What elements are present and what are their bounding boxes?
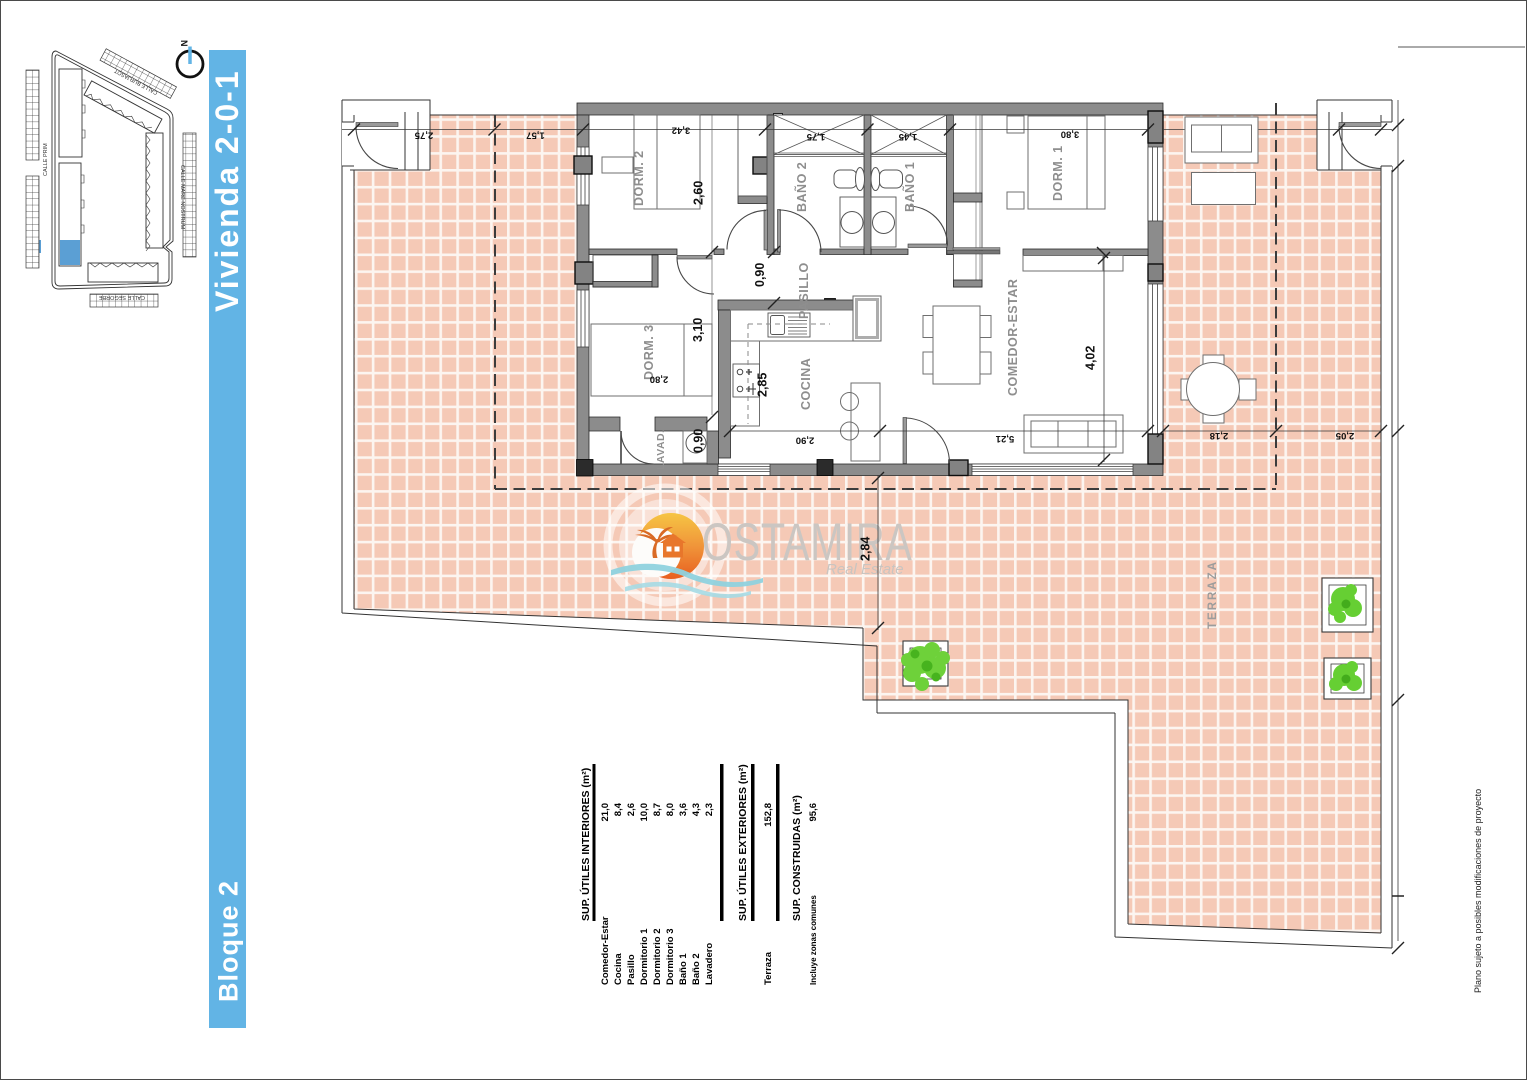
- svg-text:5,21: 5,21: [995, 433, 1014, 444]
- svg-text:4,02: 4,02: [1084, 346, 1098, 370]
- svg-text:COMEDOR-ESTAR: COMEDOR-ESTAR: [1006, 279, 1020, 396]
- svg-text:3,6: 3,6: [678, 803, 689, 816]
- svg-text:Comedor-Estar: Comedor-Estar: [600, 916, 611, 985]
- svg-text:2,3: 2,3: [704, 803, 715, 816]
- svg-text:Cocina: Cocina: [613, 953, 624, 985]
- svg-text:2,05: 2,05: [1335, 430, 1354, 441]
- svg-text:1,57: 1,57: [526, 130, 545, 141]
- svg-text:Dormitorio 2: Dormitorio 2: [652, 929, 663, 985]
- svg-text:Lavadero: Lavadero: [704, 943, 715, 985]
- svg-text:Dormitorio 3: Dormitorio 3: [665, 929, 676, 985]
- svg-text:2,6: 2,6: [626, 803, 637, 816]
- svg-text:BAÑO 2: BAÑO 2: [794, 162, 809, 212]
- svg-text:DORM. 2: DORM. 2: [632, 150, 646, 206]
- svg-text:4,3: 4,3: [691, 803, 702, 816]
- svg-text:8,0: 8,0: [665, 803, 676, 816]
- svg-text:3,42: 3,42: [672, 125, 691, 136]
- svg-text:CALLE SEGORBE: CALLE SEGORBE: [99, 294, 145, 300]
- svg-text:LAVAD.: LAVAD.: [655, 429, 667, 470]
- svg-text:Incluye zonas comunes: Incluye zonas comunes: [809, 895, 818, 985]
- svg-text:Plano sujeto a posibles modifi: Plano sujeto a posibles modificaciones d…: [1473, 789, 1483, 993]
- svg-text:1,75: 1,75: [806, 131, 825, 142]
- svg-text:2,18: 2,18: [1210, 430, 1229, 441]
- svg-text:TERRAZA: TERRAZA: [1207, 560, 1219, 629]
- svg-text:CALLE PRIM: CALLE PRIM: [43, 143, 49, 176]
- svg-text:3,10: 3,10: [691, 318, 705, 342]
- svg-text:2,80: 2,80: [650, 374, 669, 385]
- svg-text:0,90: 0,90: [753, 263, 767, 287]
- svg-text:Real Estate: Real Estate: [826, 561, 904, 578]
- svg-text:2,60: 2,60: [692, 181, 706, 205]
- svg-text:DORM. 3: DORM. 3: [642, 324, 656, 380]
- svg-text:8,4: 8,4: [613, 802, 624, 816]
- svg-text:2,75: 2,75: [414, 130, 433, 141]
- svg-text:BAÑO 1: BAÑO 1: [902, 162, 917, 212]
- svg-text:Dormitorio 1: Dormitorio 1: [639, 928, 650, 985]
- svg-text:3,80: 3,80: [1061, 129, 1080, 140]
- svg-text:COCINA: COCINA: [799, 358, 813, 410]
- svg-text:2,85: 2,85: [756, 373, 770, 397]
- svg-text:10,0: 10,0: [639, 803, 650, 822]
- svg-text:152,8: 152,8: [763, 803, 774, 827]
- svg-text:2,90: 2,90: [796, 435, 815, 446]
- svg-text:0,90: 0,90: [692, 429, 706, 453]
- svg-text:SUP. ÚTILES INTERIORES (m²): SUP. ÚTILES INTERIORES (m²): [579, 768, 592, 921]
- svg-text:8,7: 8,7: [652, 803, 663, 816]
- svg-text:N: N: [180, 40, 190, 47]
- svg-text:1,45: 1,45: [898, 131, 917, 142]
- svg-text:Bloque 2: Bloque 2: [214, 880, 244, 1002]
- svg-text:CALLE MARE NOSTRUM: CALLE MARE NOSTRUM: [179, 165, 185, 230]
- svg-text:Baño 1: Baño 1: [678, 953, 689, 985]
- svg-text:Pasillo: Pasillo: [626, 954, 637, 985]
- svg-text:SUP. CONSTRUIDAS (m²): SUP. CONSTRUIDAS (m²): [791, 795, 803, 921]
- svg-text:Baño 2: Baño 2: [691, 953, 702, 985]
- svg-text:DORM. 1: DORM. 1: [1051, 145, 1065, 201]
- svg-text:21,0: 21,0: [600, 803, 611, 822]
- svg-text:SUP. ÚTILES EXTERIORES (m²): SUP. ÚTILES EXTERIORES (m²): [736, 764, 749, 921]
- svg-text:Vivienda 2-0-1: Vivienda 2-0-1: [209, 69, 245, 312]
- svg-text:PASILLO: PASILLO: [797, 262, 811, 319]
- svg-text:2,84: 2,84: [859, 537, 873, 561]
- svg-text:Terraza: Terraza: [763, 951, 774, 985]
- svg-text:95,6: 95,6: [808, 803, 819, 822]
